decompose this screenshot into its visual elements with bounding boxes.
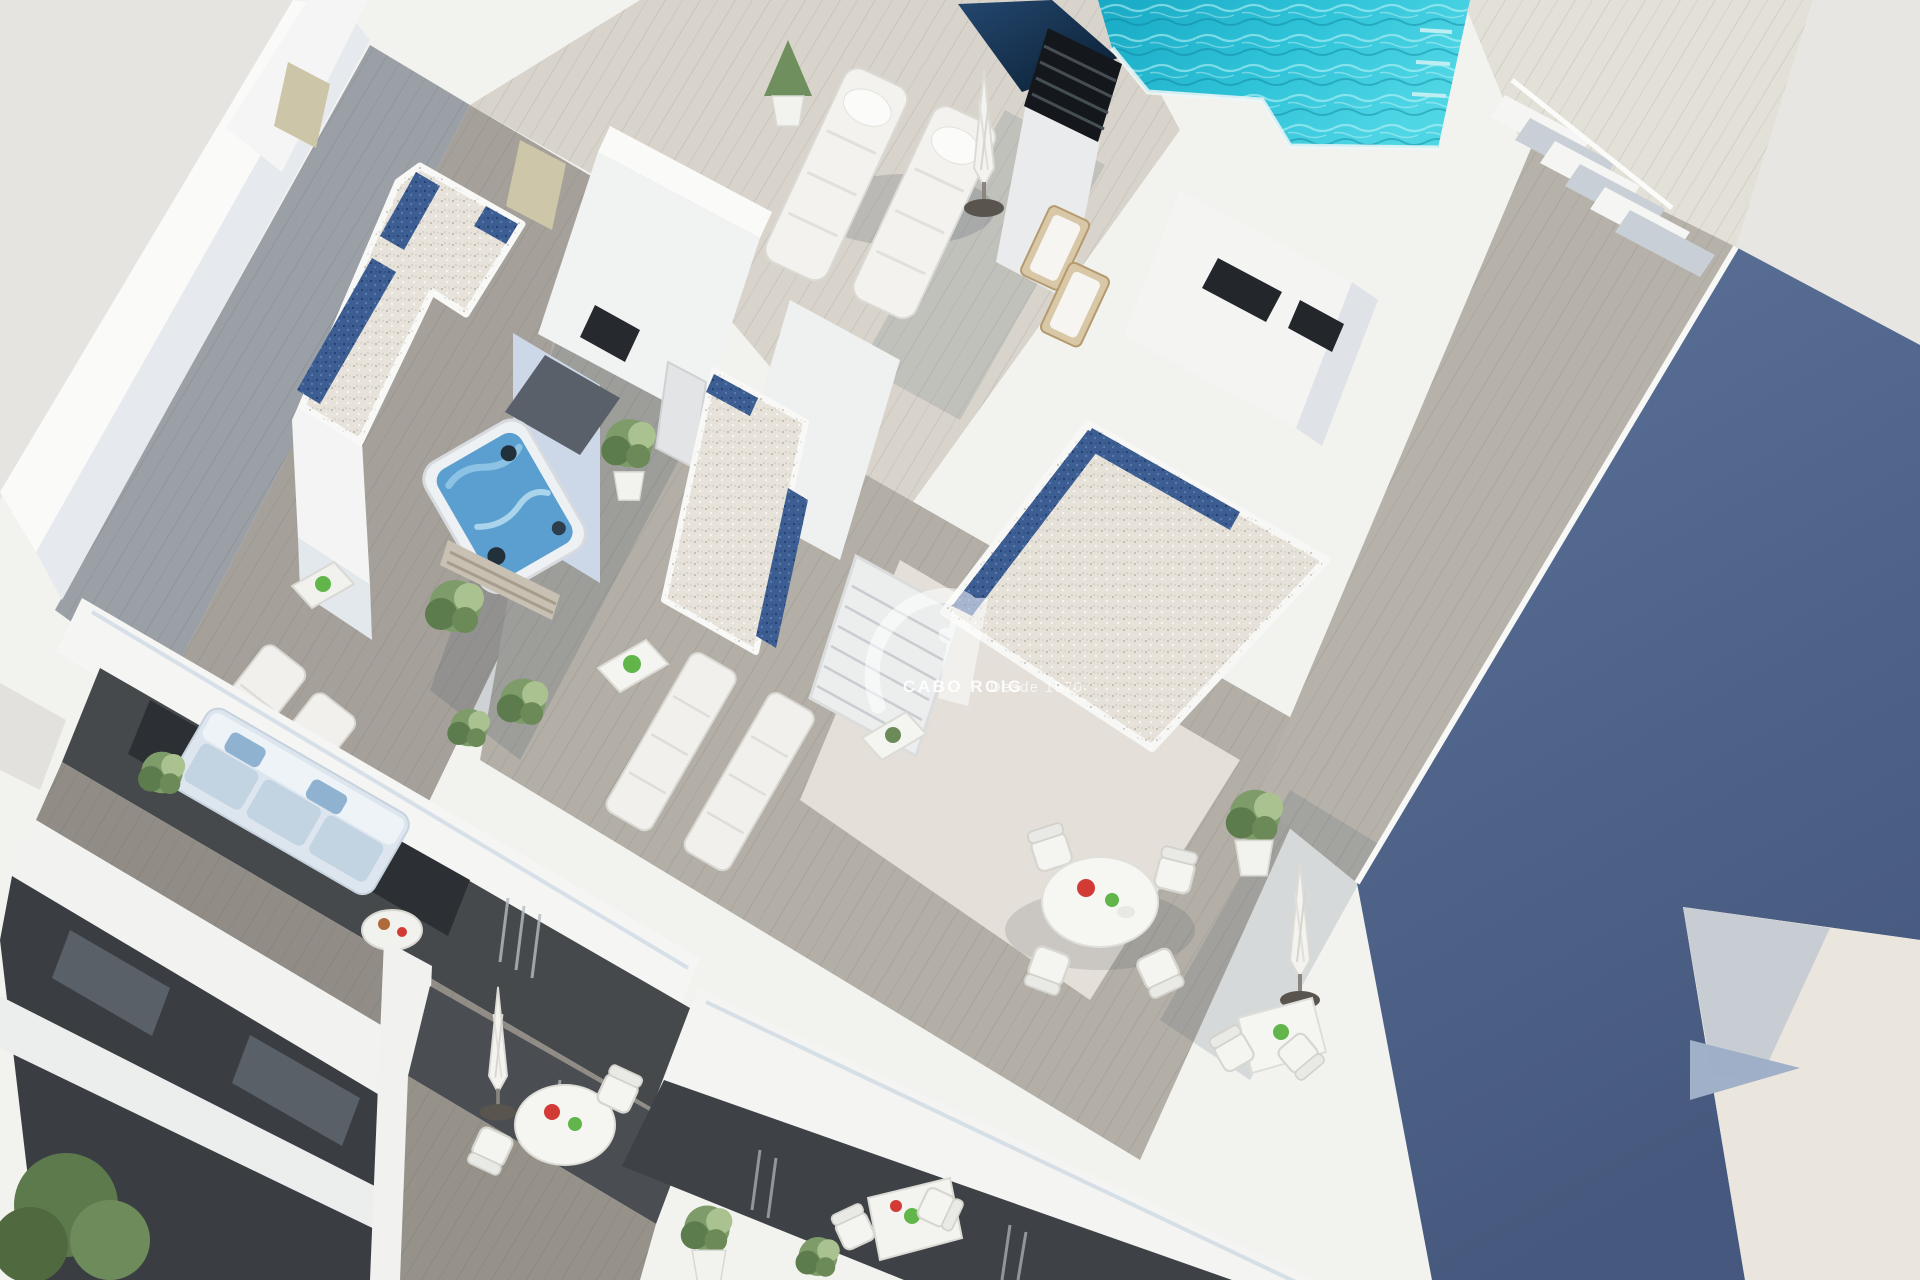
- watermark-tagline-text: Desde 1970: [990, 680, 1083, 696]
- plant-pot: [614, 472, 644, 500]
- coffee-table: [362, 910, 422, 950]
- rooftop-render: CABO ROIG Desde 1970: [0, 0, 1920, 1280]
- render-canvas: CABO ROIG Desde 1970: [0, 0, 1920, 1280]
- round-dining-table: [1042, 857, 1158, 947]
